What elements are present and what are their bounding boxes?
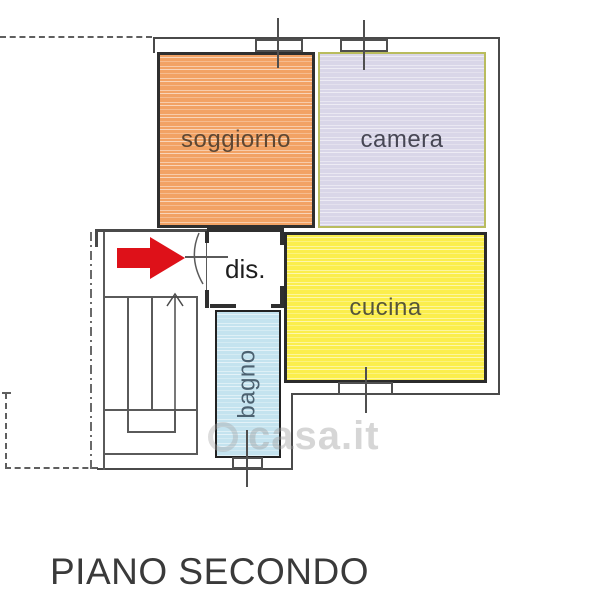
window-bagno-end-left xyxy=(232,457,234,469)
entrance-door-leaf-line xyxy=(185,256,228,258)
entrance-door-swing-arc xyxy=(194,233,203,284)
window-top-a-end-left xyxy=(255,39,257,52)
entrance-top-wall xyxy=(95,229,208,232)
room-label-bagno: bagno xyxy=(234,349,262,418)
window-top-b-end-left xyxy=(340,39,342,52)
stairwell-left-wall xyxy=(103,232,105,470)
outer-wall-step-vertical xyxy=(291,393,293,470)
stairs-landing-bottom xyxy=(127,431,176,433)
window-top-a-outer xyxy=(255,39,303,41)
room-label-soggiorno: soggiorno xyxy=(181,126,291,154)
room-label-dis: dis. xyxy=(225,254,265,285)
window-top-a-axis xyxy=(277,18,279,68)
window-cucina-end-right xyxy=(391,382,393,395)
window-top-b-axis xyxy=(363,20,365,70)
boundary-dashdot-left xyxy=(90,232,92,470)
room-soggiorno: soggiorno xyxy=(157,52,315,228)
dis-right-wall-top-seg xyxy=(280,231,284,245)
room-bagno: bagno xyxy=(215,310,281,458)
stairs-landing-left xyxy=(127,409,129,433)
room-camera: camera xyxy=(318,52,486,228)
room-cucina: cucina xyxy=(284,232,487,383)
room-label-camera: camera xyxy=(360,126,443,154)
page-title: PIANO SECONDO xyxy=(50,551,369,593)
boundary-tick xyxy=(2,392,11,394)
dis-left-wall-top-seg xyxy=(205,231,209,243)
stairs-mid-line xyxy=(104,409,198,411)
stairs-landing-right xyxy=(174,409,176,433)
window-cucina-axis xyxy=(365,367,367,413)
stairs-tread-line-2 xyxy=(151,296,153,410)
outer-wall-left-tick xyxy=(153,37,155,53)
entrance-arrow-icon xyxy=(117,237,185,279)
boundary-dashed-top-left xyxy=(0,36,152,38)
dis-left-wall-bottom-seg xyxy=(205,290,209,308)
window-bagno-axis xyxy=(246,430,248,487)
dis-bottom-wall-left-seg xyxy=(210,304,236,308)
entrance-left-hook xyxy=(95,229,98,247)
outer-wall-right xyxy=(498,37,500,395)
stairs-bottom-line xyxy=(104,453,198,455)
outer-wall-annex-bottom xyxy=(97,468,293,470)
window-top-a-end-right xyxy=(301,39,303,52)
entrance-arrow-head xyxy=(150,237,185,279)
entrance-arrow-shaft xyxy=(117,248,150,268)
boundary-dashed-bottom-left-horizontal xyxy=(5,467,98,469)
window-cucina-end-left xyxy=(338,382,340,395)
stairs-tread-line-1 xyxy=(127,296,129,410)
floor-plan: soggiorno camera cucina bagno dis. xyxy=(0,0,610,600)
window-top-a-inner xyxy=(255,50,303,52)
dis-top-wall xyxy=(207,228,284,232)
outer-wall-bottom xyxy=(291,393,500,395)
boundary-dashed-bottom-left-vertical xyxy=(5,393,7,469)
dis-bottom-wall-right-seg xyxy=(271,304,284,308)
stairs-right-line xyxy=(196,296,198,455)
room-label-cucina: cucina xyxy=(349,294,421,322)
outer-wall-top xyxy=(153,37,500,39)
window-top-b-end-right xyxy=(386,39,388,52)
window-bagno-end-right xyxy=(261,457,263,469)
